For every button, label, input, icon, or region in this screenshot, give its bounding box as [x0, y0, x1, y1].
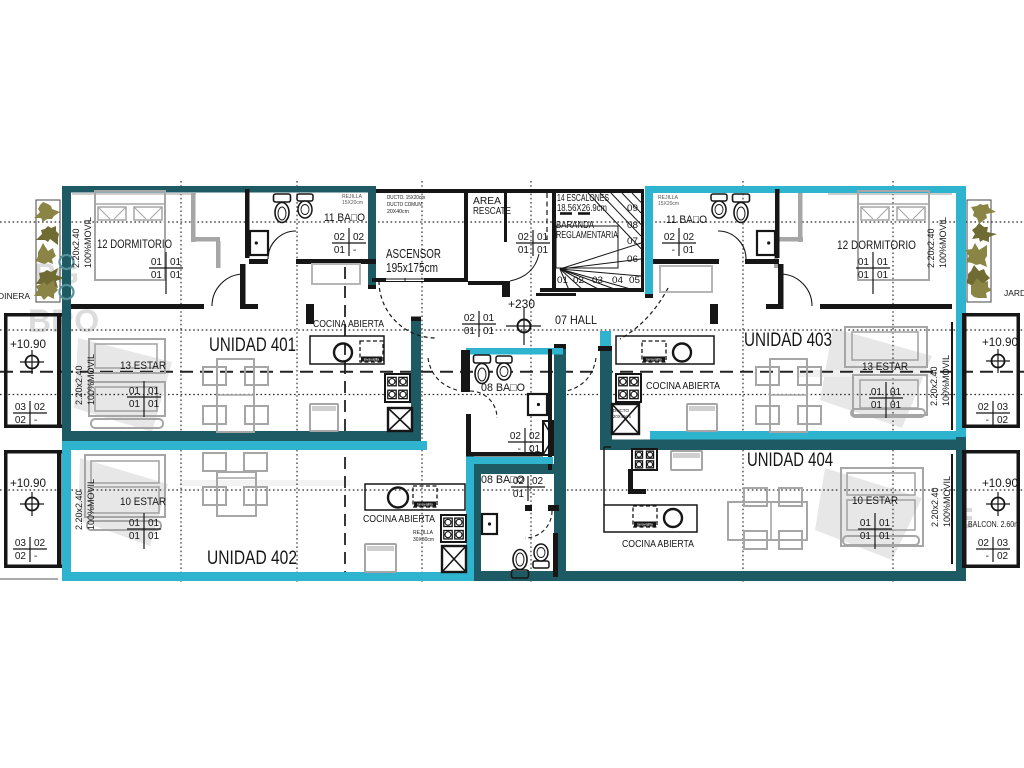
svg-text:10 ESTAR: 10 ESTAR [120, 496, 166, 508]
svg-text:01: 01 [529, 444, 541, 455]
svg-text:01: 01 [148, 518, 160, 529]
svg-text:01: 01 [877, 257, 889, 268]
svg-text:02: 02 [978, 538, 990, 549]
svg-text:01: 01 [879, 531, 891, 542]
svg-text:07: 07 [627, 236, 638, 246]
svg-text:11 BA□O: 11 BA□O [666, 214, 707, 226]
svg-text:COCINA ABIERTA: COCINA ABIERTA [363, 514, 435, 525]
svg-text:01: 01 [858, 257, 870, 268]
svg-text:01: 01 [877, 270, 889, 281]
svg-text:RESCATE: RESCATE [473, 206, 511, 217]
svg-text:20X40cm: 20X40cm [387, 209, 409, 215]
svg-text:COCINA ABIERTA: COCINA ABIERTA [313, 319, 384, 330]
svg-text:02: 02 [664, 232, 676, 243]
svg-text:03: 03 [997, 402, 1009, 413]
svg-text:DUCTO. 15X20cm: DUCTO. 15X20cm [387, 195, 425, 201]
svg-text:01: 01 [148, 531, 160, 542]
svg-text:100%MOVIL: 100%MOVIL [86, 354, 96, 405]
svg-text:01: 01 [129, 399, 141, 410]
svg-text:ASCENSOR: ASCENSOR [386, 246, 441, 261]
svg-text:08 BA□O: 08 BA□O [481, 382, 525, 394]
svg-text:REGLAMENTARIA: REGLAMENTARIA [556, 230, 618, 241]
svg-text:04: 04 [612, 275, 623, 285]
svg-text:+10.90: +10.90 [10, 478, 46, 490]
svg-text:01: 01 [483, 326, 495, 337]
svg-text:01: 01 [871, 400, 883, 411]
svg-text:01: 01 [518, 245, 530, 256]
svg-text:07 HALL: 07 HALL [555, 313, 597, 327]
svg-text:+10.90: +10.90 [982, 337, 1018, 349]
svg-text:COCINA ABIERTA: COCINA ABIERTA [622, 539, 694, 550]
svg-text:01: 01 [129, 386, 141, 397]
svg-text:02: 02 [978, 402, 990, 413]
svg-text:01: 01 [483, 313, 495, 324]
svg-text:-: - [518, 444, 521, 455]
svg-text:01: 01 [151, 270, 163, 281]
svg-text:02: 02 [513, 476, 525, 487]
svg-text:01: 01 [860, 531, 872, 542]
svg-text:01: 01 [683, 245, 695, 256]
svg-text:+230: +230 [508, 297, 535, 311]
svg-text:UNIDAD 403: UNIDAD 403 [744, 330, 832, 351]
svg-text:-: - [986, 415, 989, 426]
svg-text:02: 02 [529, 431, 541, 442]
svg-text:+10.90: +10.90 [10, 339, 46, 351]
svg-text:12 DORMITORIO: 12 DORMITORIO [97, 237, 172, 251]
svg-text:01: 01 [464, 326, 476, 337]
svg-text:01: 01 [334, 245, 346, 256]
svg-text:JARDINERA: JARDINERA [1004, 289, 1024, 298]
svg-text:JARDINERA: JARDINERA [0, 292, 31, 301]
svg-text:lavavajilla: lavavajilla [637, 523, 653, 527]
svg-text:02: 02 [997, 415, 1009, 426]
svg-text:100%MOVIL: 100%MOVIL [938, 217, 948, 268]
svg-text:15X20cm: 15X20cm [342, 200, 363, 206]
svg-text:03: 03 [15, 402, 27, 413]
svg-text:2.20x2.40: 2.20x2.40 [926, 228, 936, 268]
svg-text:01: 01 [890, 387, 902, 398]
svg-text:06: 06 [627, 254, 638, 264]
svg-text:02: 02 [34, 538, 46, 549]
svg-text:01: 01 [858, 270, 870, 281]
svg-text:01: 01 [129, 518, 141, 529]
svg-text:01: 01 [148, 399, 160, 410]
svg-text:-: - [986, 551, 989, 562]
svg-text:12 DORMITORIO: 12 DORMITORIO [837, 238, 916, 252]
svg-text:01: 01 [170, 257, 182, 268]
svg-text:02: 02 [353, 232, 365, 243]
svg-text:-: - [34, 551, 37, 562]
svg-text:lavavajilla: lavavajilla [646, 358, 662, 362]
svg-text:2.20x2.40: 2.20x2.40 [74, 365, 84, 405]
svg-text:UNIDAD 402: UNIDAD 402 [207, 548, 297, 569]
svg-text:COCINA ABIERTA: COCINA ABIERTA [646, 381, 720, 392]
svg-text:01: 01 [513, 489, 525, 500]
svg-text:01: 01 [890, 400, 902, 411]
svg-text:-: - [34, 415, 37, 426]
svg-text:2.20x2.40: 2.20x2.40 [74, 490, 84, 530]
svg-text:01: 01 [170, 270, 182, 281]
svg-text:10 ESTAR: 10 ESTAR [852, 495, 898, 507]
svg-text:02: 02 [34, 402, 46, 413]
svg-text:18.56X26.9cm: 18.56X26.9cm [557, 203, 607, 214]
svg-text:01: 01 [129, 531, 141, 542]
svg-text:02: 02 [510, 431, 522, 442]
svg-text:13 ESTAR: 13 ESTAR [120, 360, 166, 372]
svg-text:195x175cm: 195x175cm [386, 260, 438, 275]
svg-text:UNIDAD 404: UNIDAD 404 [747, 450, 833, 471]
svg-text:2.20x2.40: 2.20x2.40 [71, 228, 81, 268]
svg-text:-: - [672, 245, 675, 256]
svg-text:DUCTO COMUN.: DUCTO COMUN. [387, 202, 423, 208]
svg-text:100%MOVIL: 100%MOVIL [83, 217, 93, 268]
svg-text:01: 01 [148, 386, 160, 397]
svg-text:100%MOVIL: 100%MOVIL [941, 355, 951, 406]
svg-text:05: 05 [629, 275, 640, 285]
svg-text:+10.90: +10.90 [982, 478, 1018, 490]
svg-text:30X30cm: 30X30cm [413, 537, 434, 543]
svg-text:03: 03 [592, 275, 603, 285]
svg-text:03: 03 [997, 538, 1009, 549]
svg-text:UNIDAD 401: UNIDAD 401 [209, 335, 296, 356]
svg-text:lavavajilla: lavavajilla [364, 358, 380, 362]
svg-text:02: 02 [997, 551, 1009, 562]
svg-text:02: 02 [518, 232, 530, 243]
svg-text:02: 02 [683, 232, 695, 243]
svg-text:02: 02 [573, 275, 584, 285]
svg-text:lavavajilla: lavavajilla [417, 503, 433, 507]
svg-text:13 ESTAR: 13 ESTAR [862, 361, 908, 373]
svg-text:01: 01 [151, 257, 163, 268]
svg-text:02: 02 [464, 313, 476, 324]
svg-text:BALCON. 2.60m: BALCON. 2.60m [968, 519, 1020, 529]
svg-text:2.20x2.40: 2.20x2.40 [930, 487, 940, 527]
svg-text:REJILLA: REJILLA [413, 530, 433, 536]
svg-text:100%MOVIL: 100%MOVIL [86, 479, 96, 530]
svg-text:03: 03 [15, 538, 27, 549]
svg-text:2.20x2.40: 2.20x2.40 [929, 366, 939, 406]
svg-text:02: 02 [15, 551, 27, 562]
svg-text:100%MOVIL: 100%MOVIL [942, 476, 952, 527]
svg-text:-: - [353, 245, 356, 256]
svg-text:09: 09 [627, 203, 638, 213]
svg-text:20X40cm: 20X40cm [613, 414, 631, 419]
svg-text:01: 01 [537, 232, 549, 243]
svg-text:02: 02 [334, 232, 346, 243]
svg-text:11 BA□O: 11 BA□O [324, 212, 365, 224]
svg-text:01: 01 [879, 518, 891, 529]
svg-text:01: 01 [871, 387, 883, 398]
svg-text:DUCTO: DUCTO [613, 408, 629, 413]
svg-text:-: - [532, 489, 535, 500]
svg-text:02: 02 [15, 415, 27, 426]
svg-text:01: 01 [557, 275, 568, 285]
svg-text:08: 08 [627, 220, 638, 230]
svg-text:02: 02 [532, 476, 544, 487]
svg-text:15X20cm: 15X20cm [658, 201, 679, 207]
svg-text:01: 01 [860, 518, 872, 529]
